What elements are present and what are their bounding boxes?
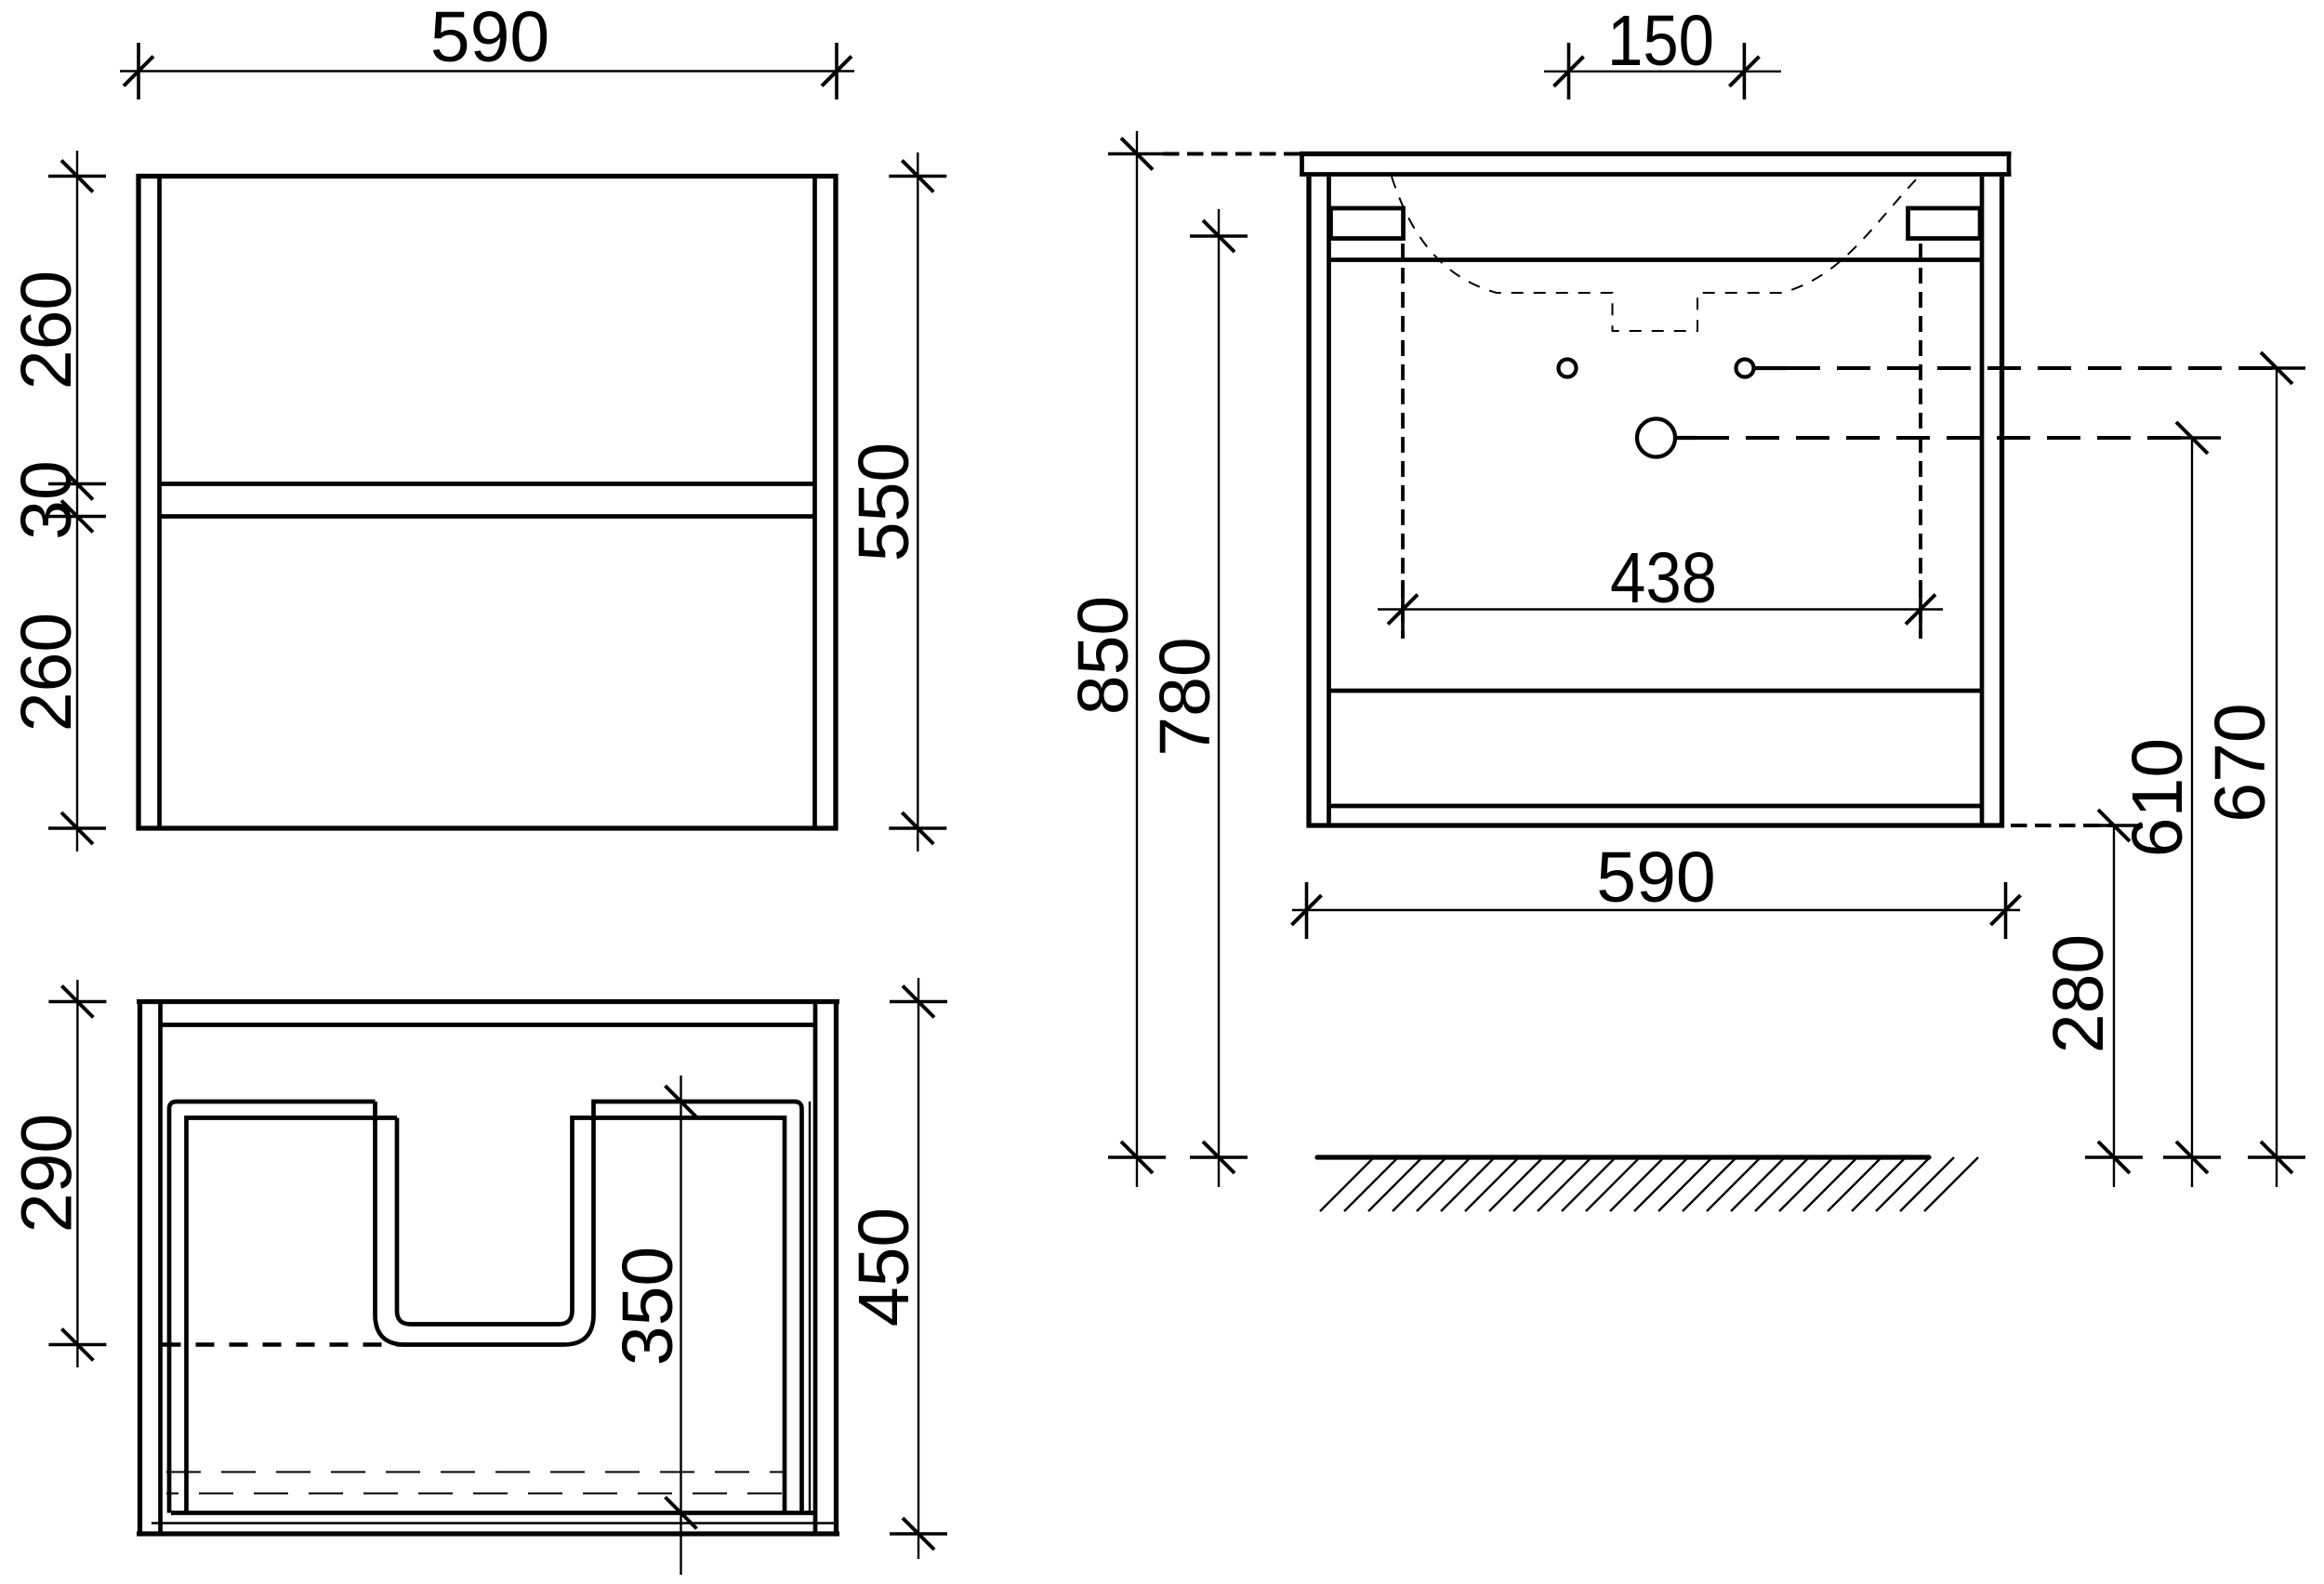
svg-text:850: 850 — [1063, 596, 1143, 715]
svg-text:150: 150 — [1607, 1, 1714, 81]
svg-text:290: 290 — [7, 1114, 86, 1233]
svg-text:550: 550 — [844, 442, 924, 561]
svg-text:450: 450 — [844, 1208, 924, 1327]
svg-text:670: 670 — [2200, 703, 2280, 822]
svg-text:610: 610 — [2118, 738, 2198, 857]
svg-text:590: 590 — [1596, 838, 1715, 917]
svg-text:30: 30 — [7, 460, 86, 540]
svg-text:260: 260 — [7, 271, 86, 389]
svg-text:260: 260 — [7, 613, 86, 732]
svg-text:350: 350 — [608, 1247, 688, 1366]
svg-text:438: 438 — [1610, 538, 1717, 618]
svg-text:590: 590 — [430, 0, 549, 77]
svg-text:780: 780 — [1145, 637, 1225, 756]
svg-text:280: 280 — [2039, 934, 2119, 1053]
